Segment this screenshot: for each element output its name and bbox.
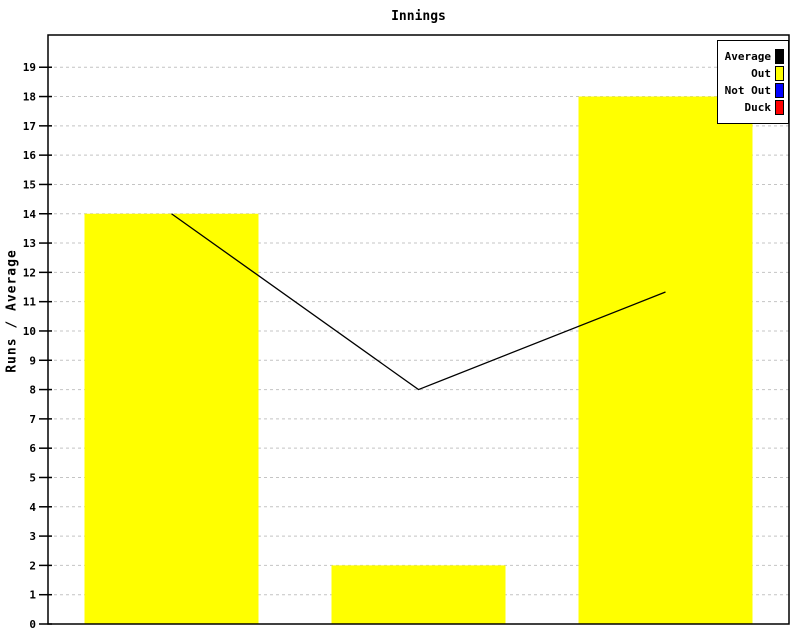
- legend-label-not-out: Not Out: [725, 84, 771, 97]
- y-tick-label: 12: [23, 266, 36, 279]
- legend-item-average: Average: [720, 48, 784, 65]
- legend-swatch-not-out: [775, 83, 784, 98]
- y-tick-label: 1: [29, 589, 36, 602]
- y-tick-label: 13: [23, 237, 36, 250]
- y-tick-label: 9: [29, 354, 36, 367]
- legend-label-duck: Duck: [745, 101, 772, 114]
- y-tick-label: 2: [29, 559, 36, 572]
- bar-out: [332, 565, 506, 624]
- legend-label-average: Average: [725, 50, 771, 63]
- legend-item-not-out: Not Out: [720, 82, 784, 99]
- legend-swatch-out: [775, 66, 784, 81]
- bar-out: [579, 97, 753, 624]
- y-tick-label: 8: [29, 384, 36, 397]
- y-tick-label: 0: [29, 618, 36, 631]
- legend-label-out: Out: [751, 67, 771, 80]
- y-tick-label: 10: [23, 325, 36, 338]
- y-tick-label: 16: [23, 149, 37, 162]
- legend-swatch-average: [775, 49, 784, 64]
- y-tick-label: 4: [29, 501, 36, 514]
- y-tick-label: 14: [23, 208, 37, 221]
- y-tick-label: 15: [23, 178, 36, 191]
- y-tick-label: 7: [29, 413, 36, 426]
- y-tick-label: 17: [23, 120, 36, 133]
- y-tick-label: 3: [29, 530, 36, 543]
- legend-item-duck: Duck: [720, 99, 784, 116]
- legend-swatch-duck: [775, 100, 784, 115]
- y-tick-label: 18: [23, 91, 36, 104]
- y-tick-label: 6: [29, 442, 36, 455]
- legend: Average Out Not Out Duck: [717, 40, 789, 124]
- y-tick-label: 11: [23, 296, 37, 309]
- plot-area: 012345678910111213141516171819: [0, 0, 800, 640]
- chart-page: { "chart_data": { "type": "bar", "title"…: [0, 0, 800, 640]
- y-tick-label: 19: [23, 61, 36, 74]
- y-tick-label: 5: [29, 471, 36, 484]
- legend-item-out: Out: [720, 65, 784, 82]
- bar-out: [85, 214, 259, 624]
